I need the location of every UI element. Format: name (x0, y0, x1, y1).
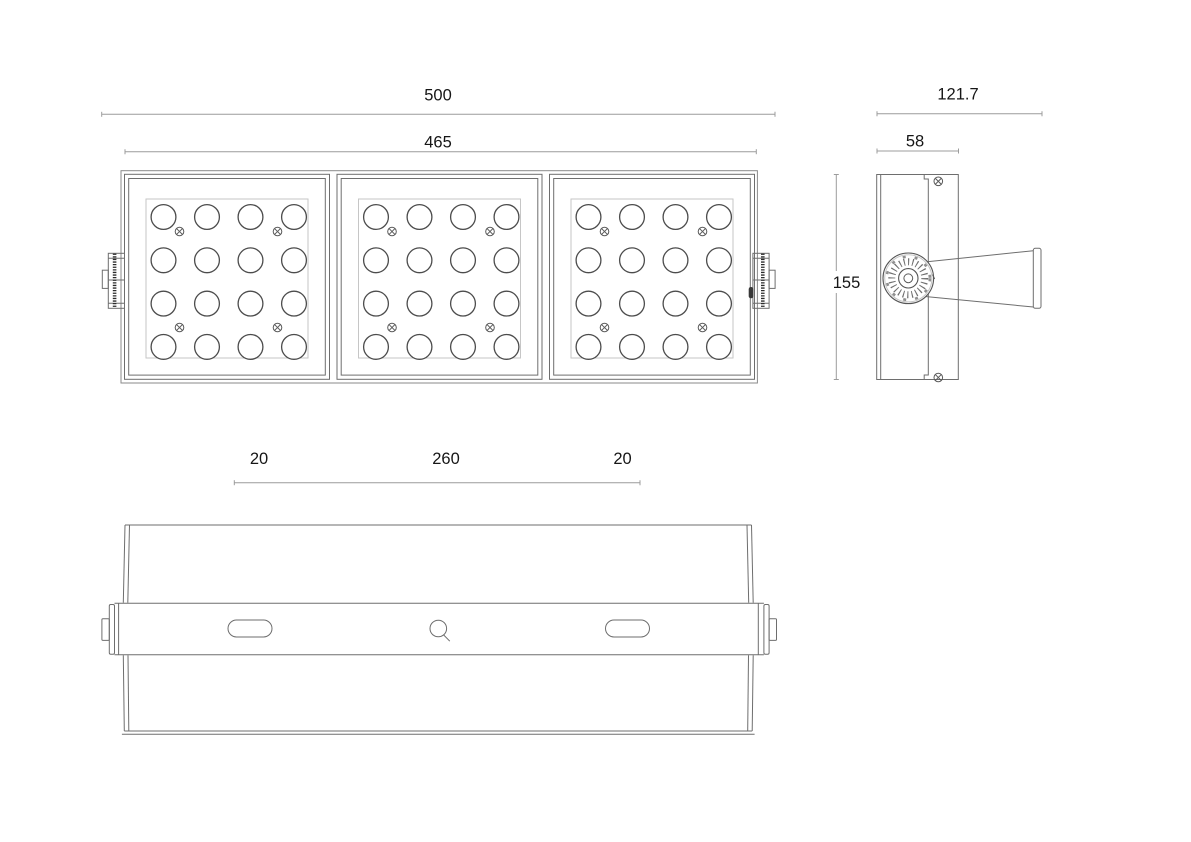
dim-module-row-width: 465 (125, 134, 756, 155)
drawing-canvas: 500 465 (0, 0, 1191, 842)
led-module-1 (125, 174, 330, 379)
led-module-2 (337, 174, 542, 379)
bottom-body-upper (123, 525, 753, 603)
dim-label-260: 260 (432, 450, 460, 468)
angle-dial (883, 253, 935, 304)
dim-label-121-7: 121.7 (937, 86, 978, 104)
bar-end-cap-right (764, 605, 769, 655)
dim-body-depth: 58 (877, 133, 959, 154)
dim-label-465: 465 (424, 134, 452, 152)
dim-label-20-left: 20 (250, 450, 268, 468)
mounting-bracket-bar (102, 603, 777, 654)
side-screw-bottom (934, 373, 943, 382)
dim-height: 155 (833, 175, 861, 380)
dim-label-155: 155 (833, 274, 861, 292)
locking-pin (749, 287, 754, 298)
knob-stub-left (102, 619, 109, 641)
led-module-3 (550, 174, 755, 379)
mounting-plate (1033, 248, 1041, 308)
mounting-slot-right (606, 620, 650, 637)
dim-label-500: 500 (424, 87, 452, 105)
dim-overall-depth: 121.7 (877, 86, 1042, 117)
knob-stub-right (769, 619, 776, 641)
bottom-view: 20 260 20 (102, 450, 777, 734)
dial-hub (899, 269, 918, 288)
dim-slot-row: 20 260 20 (234, 450, 640, 485)
dim-label-58: 58 (906, 133, 924, 151)
dim-label-20-right: 20 (613, 450, 631, 468)
side-screw-top (934, 177, 943, 186)
technical-drawing: 500 465 (0, 0, 1191, 842)
bar-end-cap-left (109, 605, 114, 655)
bottom-body-lower (122, 655, 755, 734)
side-view: 121.7 58 155 (833, 86, 1042, 382)
mounting-knob-right (749, 253, 775, 308)
dim-overall-width: 500 (102, 87, 775, 117)
mounting-slot-left (228, 620, 272, 637)
center-keyhole (430, 620, 450, 641)
mounting-arm (920, 248, 1041, 308)
front-view: 500 465 (102, 87, 775, 384)
